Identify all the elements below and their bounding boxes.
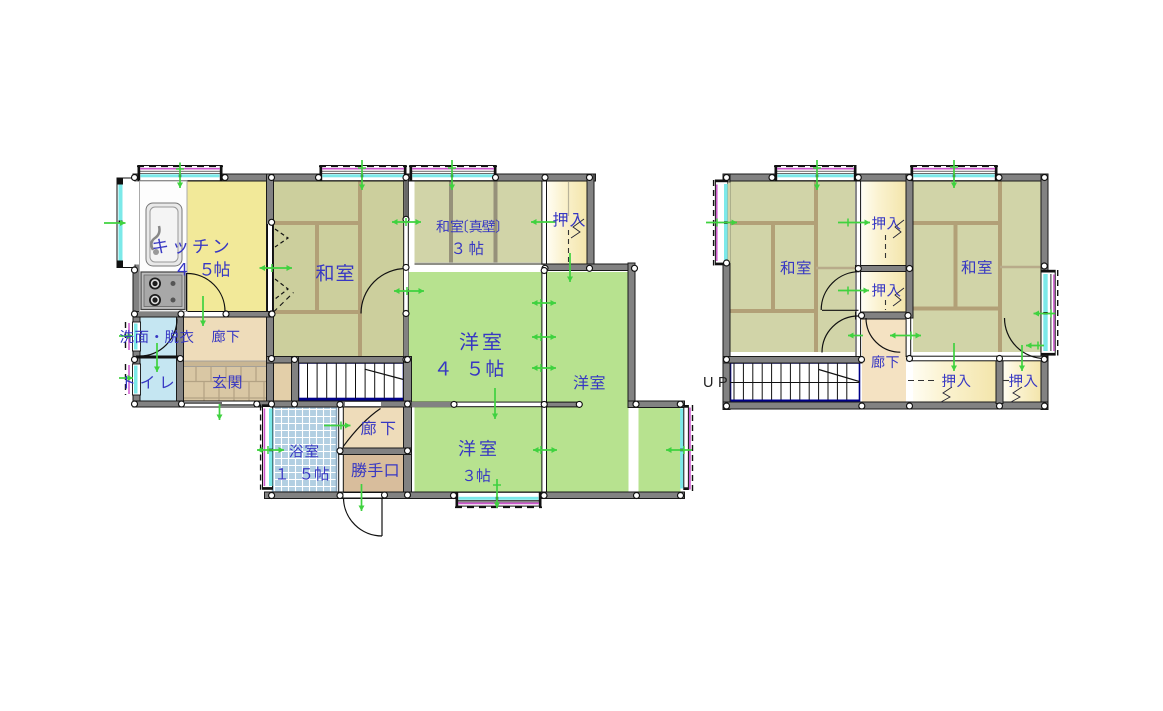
svg-text:UP: UP [703, 375, 732, 391]
